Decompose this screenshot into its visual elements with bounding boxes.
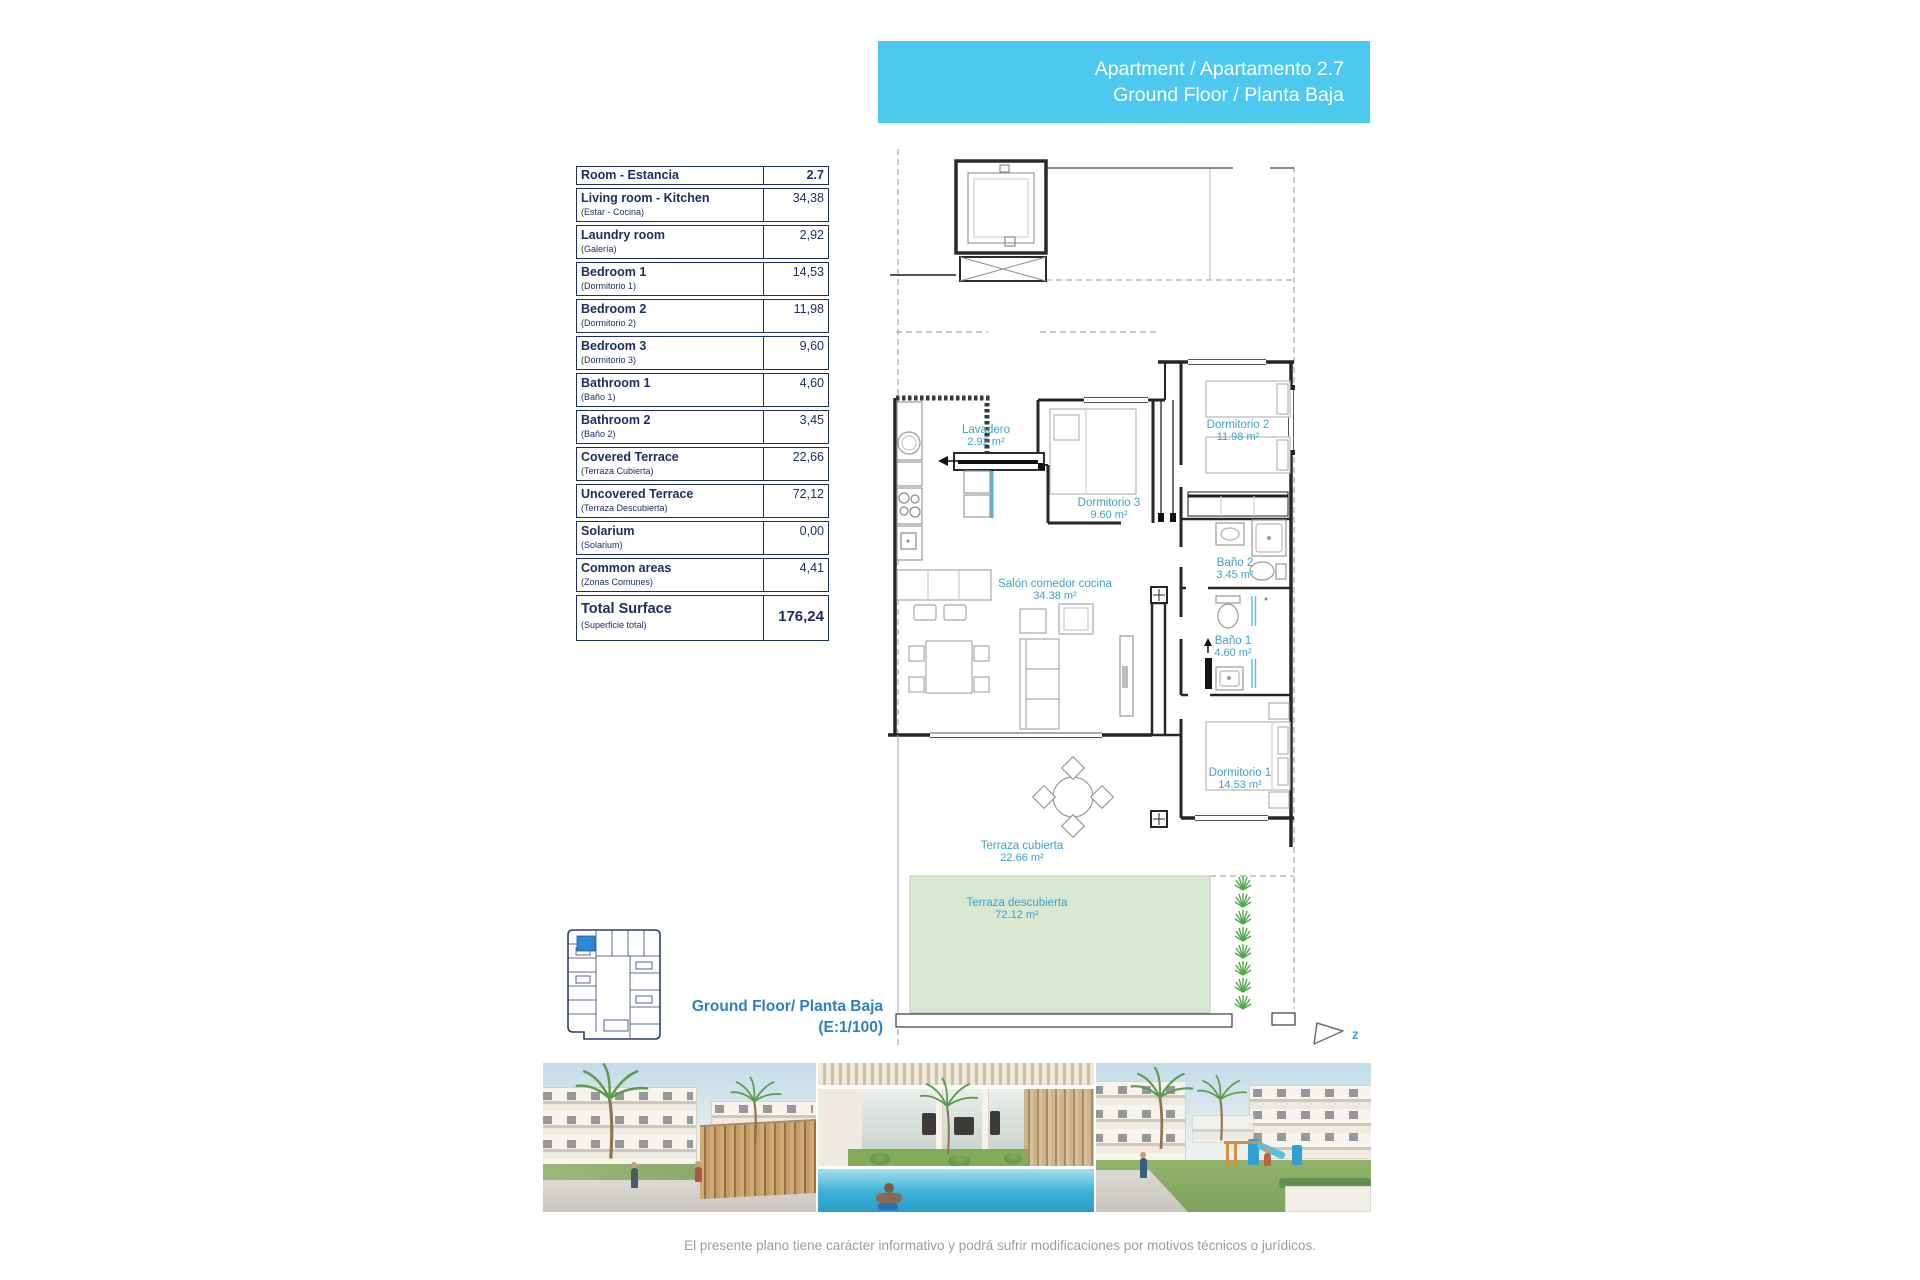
photo-swim-trunks: [878, 1203, 898, 1210]
room-area-lavadero: 2.92 m²: [967, 436, 1005, 448]
room-label-terraza-cubierta: Terraza cubierta: [981, 840, 1064, 852]
row-value: 0,00: [763, 522, 828, 555]
row-value: 3,45: [763, 411, 828, 444]
photo-exterior-walkway: [543, 1063, 816, 1212]
room-area-bano1: 4.60 m²: [1214, 647, 1252, 659]
row-value: 14,53: [763, 263, 828, 296]
bedroom1-furniture: [1206, 703, 1290, 808]
row-subname: (Baño 2): [581, 429, 763, 440]
row-name: Uncovered Terrace: [581, 487, 763, 501]
room-area-dormitorio3: 9.60 m²: [1090, 509, 1128, 521]
row-value: 11,98: [763, 300, 828, 333]
room-area-dormitorio2: 11.98 m²: [1217, 431, 1260, 443]
row-name: Common areas: [581, 561, 763, 575]
row-subname: (Terraza Descubierta): [581, 503, 763, 514]
table-total-row: Total Surface(Superficie total) 176,24: [576, 595, 829, 641]
photo-swimmer-body: [876, 1193, 902, 1203]
terrace-furniture: [1033, 757, 1114, 838]
table-row: Covered Terrace(Terraza Cubierta) 22,66: [576, 447, 829, 482]
palm-tree-icon: [567, 1063, 657, 1161]
room-label-salon: Salón comedor cocina: [998, 578, 1112, 590]
room-label-dormitorio2: Dormitorio 2: [1207, 419, 1270, 431]
row-name: Bathroom 2: [581, 413, 763, 427]
photo-pool: [818, 1166, 1094, 1212]
row-subname: (Dormitorio 2): [581, 318, 763, 329]
table-row: Living room - Kitchen(Estar - Cocina) 34…: [576, 188, 829, 223]
row-name: Laundry room: [581, 228, 763, 242]
photo-bush: [1004, 1153, 1022, 1164]
palm-tree-icon: [1192, 1073, 1252, 1143]
photo-pool-gym: [818, 1063, 1094, 1212]
caption-scale: (E:1/100): [640, 1017, 883, 1038]
palm-tree-icon: [914, 1071, 984, 1161]
north-arrow-icon: z: [1314, 1023, 1358, 1044]
table-row: Bedroom 3(Dormitorio 3) 9,60: [576, 336, 829, 371]
north-label: z: [1352, 1026, 1358, 1042]
row-name: Solarium: [581, 524, 763, 538]
bedroom3-furniture: [1050, 409, 1136, 494]
banner-apartment-title: Apartment / Apartamento 2.7: [878, 56, 1344, 82]
elevator-shaft: [956, 161, 1046, 253]
row-value: 22,66: [763, 448, 828, 481]
room-label-lavadero: Lavadero: [962, 424, 1010, 436]
row-subname: (Solarium): [581, 540, 763, 551]
row-name: Covered Terrace: [581, 450, 763, 464]
row-subname: (Dormitorio 1): [581, 281, 763, 292]
table-row: Uncovered Terrace(Terraza Descubierta) 7…: [576, 484, 829, 519]
room-area-terraza-cubierta: 22.66 m²: [1000, 852, 1044, 864]
entry-arrow-icon: [938, 456, 948, 466]
room-label-dormitorio1: Dormitorio 1: [1209, 767, 1272, 779]
room-surface-table: Room - Estancia 2.7 Living room - Kitche…: [576, 166, 829, 641]
row-subname: (Zonas Comunes): [581, 577, 763, 588]
key-plan-caption: Ground Floor/ Planta Baja (E:1/100): [640, 996, 883, 1038]
photo-swimmer: [884, 1183, 894, 1193]
row-value: 4,41: [763, 559, 828, 592]
row-name: Bedroom 2: [581, 302, 763, 316]
highlighted-unit: [577, 936, 595, 951]
row-subname: (Galería): [581, 244, 763, 255]
disclaimer-text: El presente plano tiene carácter informa…: [400, 1238, 1600, 1253]
table-row: Bathroom 1(Baño 1) 4,60: [576, 373, 829, 408]
room-label-bano1: Baño 1: [1215, 635, 1251, 647]
elevator-stairs-core: [890, 161, 1294, 281]
row-subname: (Dormitorio 3): [581, 355, 763, 366]
title-banner: Apartment / Apartamento 2.7 Ground Floor…: [878, 41, 1370, 123]
table-header-row: Room - Estancia 2.7: [576, 166, 829, 185]
row-value: 2,92: [763, 226, 828, 259]
entry-door: [938, 453, 1045, 518]
table-header-value: 2.7: [763, 167, 828, 184]
row-subname: (Terraza Cubierta): [581, 466, 763, 477]
table-row: Bedroom 2(Dormitorio 2) 11,98: [576, 299, 829, 334]
uncovered-terrace: [896, 876, 1295, 1027]
palm-tree-icon: [1124, 1065, 1200, 1151]
row-value: 9,60: [763, 337, 828, 370]
plants-strip: [1235, 876, 1251, 1009]
room-area-bano2: 3.45 m²: [1216, 569, 1254, 581]
row-name: Bedroom 3: [581, 339, 763, 353]
row-name: Bedroom 1: [581, 265, 763, 279]
row-name: Living room - Kitchen: [581, 191, 763, 205]
plan-sheet-page: Apartment / Apartamento 2.7 Ground Floor…: [0, 0, 1920, 1280]
palm-tree-icon: [725, 1075, 787, 1145]
room-area-salon: 34.38 m²: [1033, 590, 1077, 602]
living-room-furniture: [909, 604, 1133, 729]
table-row: Bedroom 1(Dormitorio 1) 14,53: [576, 262, 829, 297]
row-name: Bathroom 1: [581, 376, 763, 390]
total-value: 176,24: [763, 596, 828, 640]
table-row: Solarium(Solarium) 0,00: [576, 521, 829, 556]
room-area-dormitorio1: 14.53 m²: [1218, 779, 1262, 791]
caption-floor: Ground Floor/ Planta Baja: [640, 996, 883, 1017]
bedroom2-furniture: [1188, 381, 1290, 516]
floor-plan-svg: z Lavadero 2.92 m² Dormitorio 3 9.60 m² …: [888, 147, 1358, 1060]
table-row: Laundry room(Galería) 2,92: [576, 225, 829, 260]
banner-floor-title: Ground Floor / Planta Baja: [878, 82, 1344, 108]
row-value: 34,38: [763, 189, 828, 222]
photo-windows: [1253, 1133, 1371, 1141]
row-value: 72,12: [763, 485, 828, 518]
row-subname: (Baño 1): [581, 392, 763, 403]
total-subname: (Superficie total): [581, 620, 763, 631]
table-row: Bathroom 2(Baño 2) 3,45: [576, 410, 829, 445]
photo-bush: [870, 1153, 890, 1165]
row-subname: (Estar - Cocina): [581, 207, 763, 218]
room-label-bano2: Baño 2: [1217, 557, 1253, 569]
table-row: Common areas(Zonas Comunes) 4,41: [576, 558, 829, 593]
table-header-label: Room - Estancia: [577, 167, 763, 184]
photo-planter-wall: [1285, 1186, 1371, 1212]
photo-windows: [1253, 1089, 1371, 1097]
photo-windows: [1253, 1111, 1371, 1119]
row-value: 4,60: [763, 374, 828, 407]
room-label-terraza-descubierta: Terraza descubierta: [967, 897, 1069, 909]
room-label-dormitorio3: Dormitorio 3: [1078, 497, 1141, 509]
total-name: Total Surface: [581, 601, 763, 618]
photo-playground: [1096, 1063, 1371, 1212]
room-area-terraza-descubierta: 72.12 m²: [995, 909, 1039, 921]
